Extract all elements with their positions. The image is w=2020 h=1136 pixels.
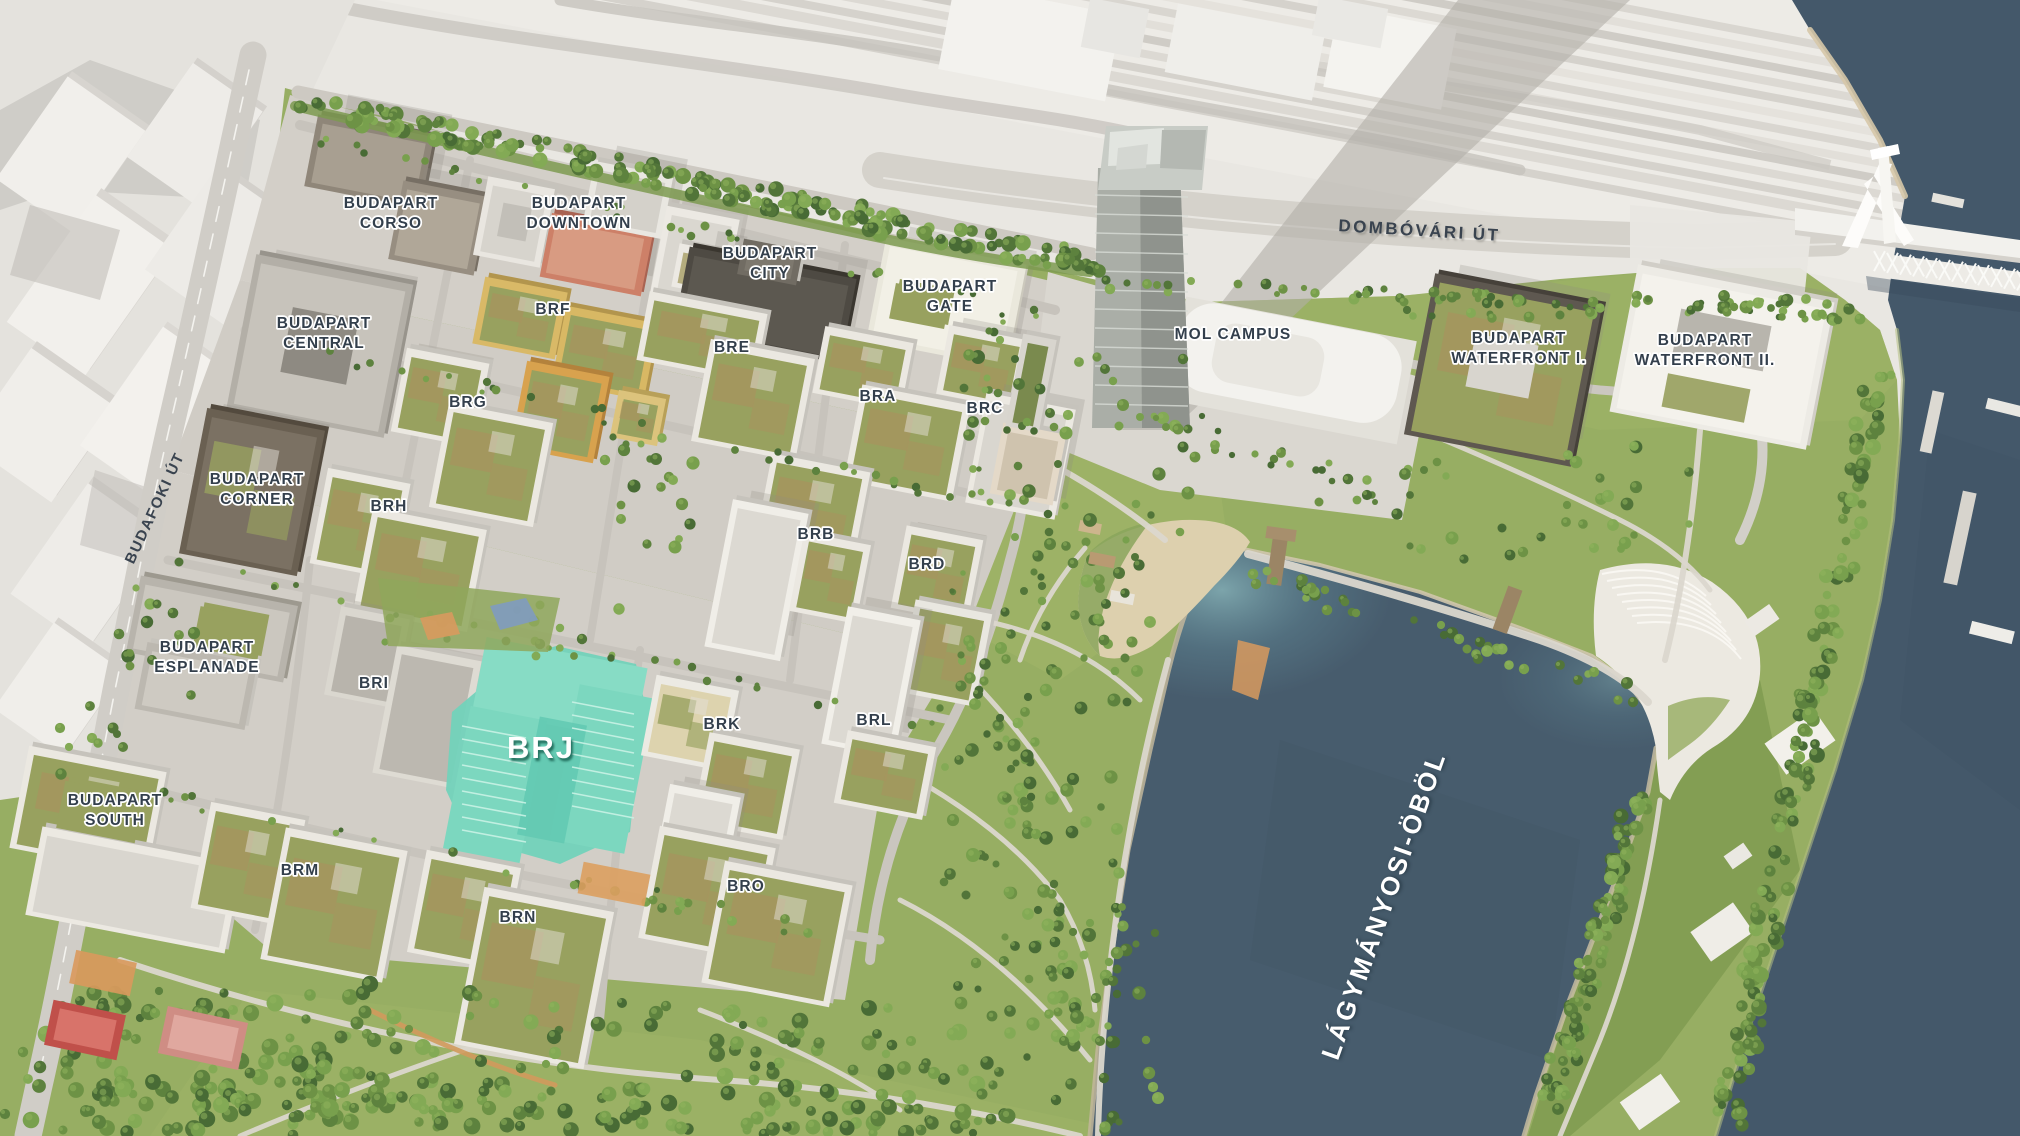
- svg-text:BRI: BRI: [359, 675, 389, 692]
- svg-text:BUDAPART: BUDAPART: [160, 639, 255, 656]
- svg-text:WATERFRONT II.: WATERFRONT II.: [1635, 352, 1776, 369]
- svg-text:CITY: CITY: [750, 265, 790, 282]
- svg-text:BRL: BRL: [856, 712, 891, 729]
- svg-text:DOWNTOWN: DOWNTOWN: [527, 215, 632, 232]
- svg-text:BUDAPART: BUDAPART: [532, 195, 627, 212]
- svg-text:CENTRAL: CENTRAL: [283, 335, 365, 352]
- svg-text:BUDAPART: BUDAPART: [1658, 332, 1753, 349]
- svg-text:SOUTH: SOUTH: [85, 812, 145, 829]
- svg-text:BRH: BRH: [371, 498, 408, 515]
- svg-text:BRJ: BRJ: [507, 730, 575, 765]
- svg-text:BUDAPART: BUDAPART: [344, 195, 439, 212]
- svg-text:BRN: BRN: [500, 909, 537, 926]
- svg-text:BRD: BRD: [909, 556, 946, 573]
- svg-text:ESPLANADE: ESPLANADE: [154, 659, 260, 676]
- svg-text:BUDAPART: BUDAPART: [210, 471, 305, 488]
- svg-text:BRE: BRE: [714, 339, 750, 356]
- svg-text:BUDAPART: BUDAPART: [277, 315, 372, 332]
- svg-text:BUDAPART: BUDAPART: [723, 245, 818, 262]
- svg-text:BRM: BRM: [281, 862, 320, 879]
- svg-text:CORSO: CORSO: [360, 215, 422, 232]
- svg-text:BRO: BRO: [727, 878, 765, 895]
- svg-text:GATE: GATE: [927, 298, 973, 315]
- svg-text:BRA: BRA: [860, 388, 897, 405]
- svg-text:BRC: BRC: [967, 400, 1004, 417]
- svg-text:BRK: BRK: [704, 716, 741, 733]
- svg-text:WATERFRONT I.: WATERFRONT I.: [1451, 350, 1586, 367]
- svg-text:CORNER: CORNER: [220, 491, 294, 508]
- svg-text:BRB: BRB: [798, 526, 835, 543]
- svg-text:BRF: BRF: [535, 301, 570, 318]
- svg-text:BUDAPART: BUDAPART: [1472, 330, 1567, 347]
- svg-text:MOL CAMPUS: MOL CAMPUS: [1175, 326, 1292, 343]
- svg-text:BRG: BRG: [449, 394, 487, 411]
- svg-text:BUDAPART: BUDAPART: [903, 278, 998, 295]
- svg-text:BUDAPART: BUDAPART: [68, 792, 163, 809]
